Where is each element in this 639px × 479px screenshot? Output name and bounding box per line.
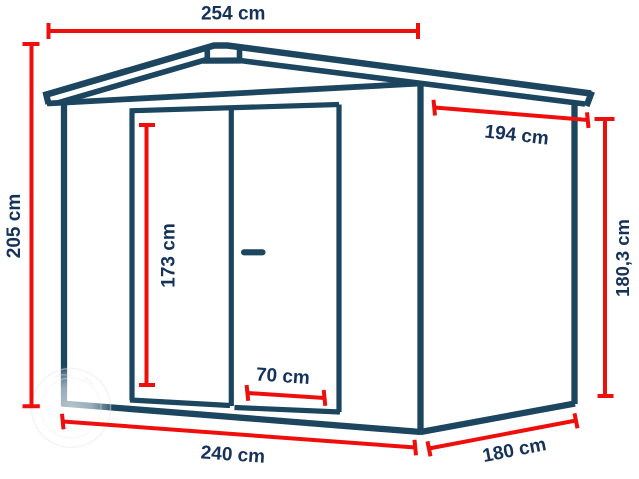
svg-text:194 cm: 194 cm bbox=[483, 121, 549, 149]
svg-text:173 cm: 173 cm bbox=[159, 223, 180, 287]
svg-text:205 cm: 205 cm bbox=[4, 194, 25, 258]
svg-text:70 cm: 70 cm bbox=[255, 364, 310, 389]
svg-text:240 cm: 240 cm bbox=[200, 442, 266, 467]
svg-text:254 cm: 254 cm bbox=[201, 3, 265, 24]
svg-text:180 cm: 180 cm bbox=[481, 434, 548, 467]
svg-text:180,3 cm: 180,3 cm bbox=[612, 219, 633, 297]
